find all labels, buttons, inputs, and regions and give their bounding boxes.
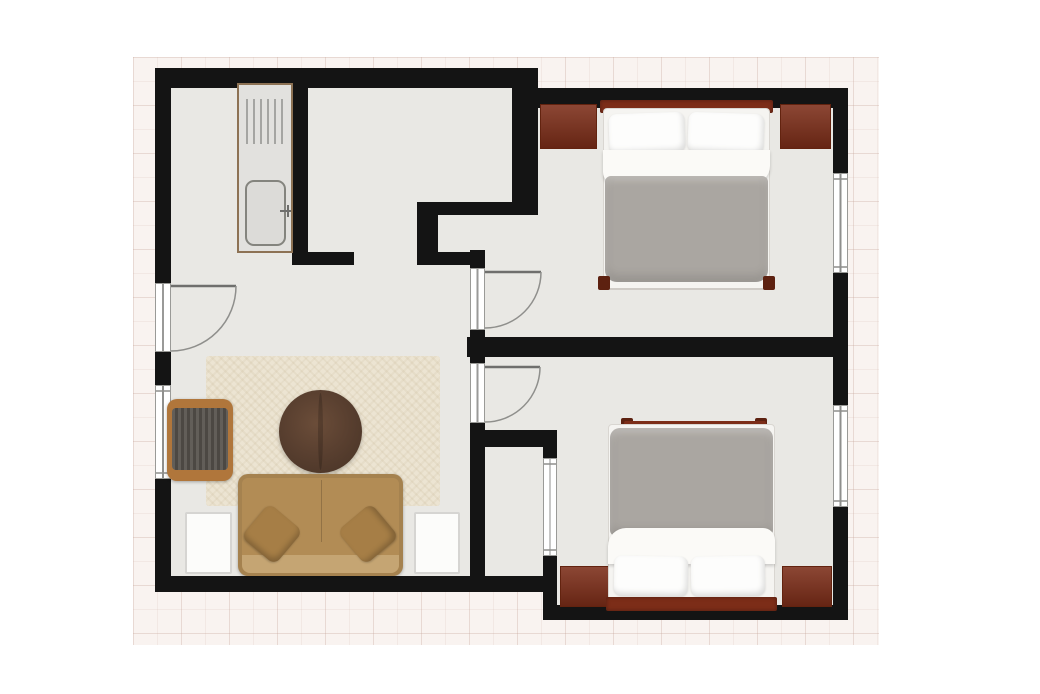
- wall-top-left-section[interactable]: [155, 68, 538, 88]
- entry-door[interactable]: [155, 283, 171, 352]
- window-right-wall-top[interactable]: [833, 173, 848, 273]
- bed-bottom-pillow-left: [614, 555, 689, 596]
- floor-plan-canvas: [0, 0, 1040, 694]
- wall-bedroom-divider[interactable]: [467, 337, 848, 357]
- faucet-icon: [280, 210, 291, 212]
- bed-top[interactable]: [598, 98, 777, 294]
- wall-kitchen-divider[interactable]: [292, 68, 308, 265]
- bed-bottom-pillow-right: [691, 555, 766, 596]
- side-table-left[interactable]: [185, 512, 232, 574]
- coffee-table[interactable]: [279, 390, 362, 473]
- wall-passage-right[interactable]: [417, 252, 485, 265]
- drainer-icon: [246, 99, 287, 144]
- wall-hall-chunk[interactable]: [512, 88, 538, 215]
- nightstand-bottom-right[interactable]: [782, 566, 832, 607]
- wall-left-upper[interactable]: [155, 68, 171, 283]
- sofa-seat-seam: [321, 480, 322, 542]
- side-table-right[interactable]: [414, 512, 460, 574]
- wall-bottom-living-room[interactable]: [155, 576, 557, 592]
- bed-bottom-duvet: [610, 428, 773, 536]
- armchair[interactable]: [167, 399, 233, 481]
- wall-right-lower[interactable]: [833, 507, 848, 620]
- wall-hall-below-door2[interactable]: [470, 423, 485, 592]
- armchair-cushion: [172, 408, 228, 470]
- bedroom-top-door[interactable]: [470, 268, 485, 330]
- bed-top-post-right: [763, 276, 775, 290]
- wall-right-upper[interactable]: [833, 108, 848, 173]
- room-floor-kitchen-area[interactable]: [163, 76, 530, 215]
- bed-top-duvet: [605, 176, 768, 282]
- kitchen-counter[interactable]: [237, 83, 293, 253]
- faucet-handle-icon: [287, 205, 289, 217]
- sofa[interactable]: [238, 474, 403, 576]
- window-shaft-wall[interactable]: [543, 458, 557, 556]
- wall-left-between-door-window[interactable]: [155, 352, 171, 385]
- window-right-wall-bottom[interactable]: [833, 405, 848, 507]
- nightstand-top-left[interactable]: [540, 104, 597, 149]
- bed-bottom[interactable]: [604, 416, 779, 612]
- bedroom-bottom-door[interactable]: [470, 363, 485, 423]
- bed-top-post-left: [598, 276, 610, 290]
- wall-shaft-right-upper[interactable]: [543, 447, 557, 458]
- wall-shaft-right-lower[interactable]: [543, 556, 557, 605]
- bed-top-pillow-left: [608, 112, 685, 155]
- bed-top-pillow-right: [687, 112, 764, 155]
- bed-bottom-headboard: [606, 597, 777, 611]
- nightstand-top-right[interactable]: [780, 104, 831, 149]
- kitchen-sink: [245, 180, 286, 246]
